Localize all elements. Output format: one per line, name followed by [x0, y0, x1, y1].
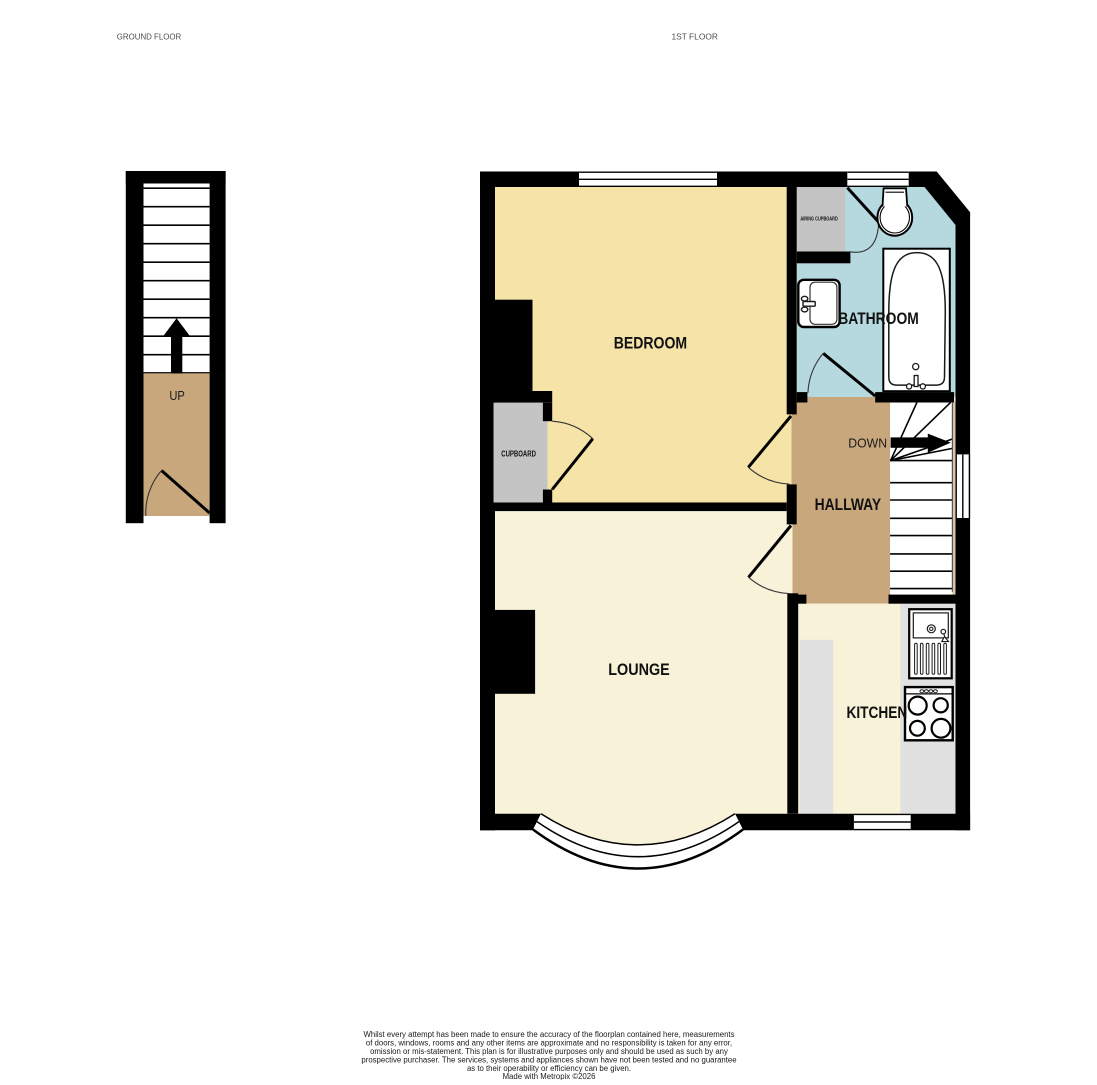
svg-text:Made with Metropix ©2026: Made with Metropix ©2026	[503, 1072, 596, 1080]
svg-text:1ST FLOOR: 1ST FLOOR	[672, 31, 718, 41]
svg-text:UP: UP	[169, 388, 185, 403]
svg-text:LOUNGE: LOUNGE	[608, 661, 670, 679]
svg-text:AIRING CUPBOARD: AIRING CUPBOARD	[800, 217, 838, 223]
svg-text:KITCHEN: KITCHEN	[847, 704, 908, 722]
svg-text:DOWN: DOWN	[848, 436, 887, 450]
svg-text:BATHROOM: BATHROOM	[838, 310, 919, 328]
svg-text:GROUND FLOOR: GROUND FLOOR	[117, 31, 181, 41]
svg-text:CUPBOARD: CUPBOARD	[501, 449, 536, 458]
svg-text:BEDROOM: BEDROOM	[614, 335, 687, 353]
svg-text:HALLWAY: HALLWAY	[815, 496, 882, 514]
